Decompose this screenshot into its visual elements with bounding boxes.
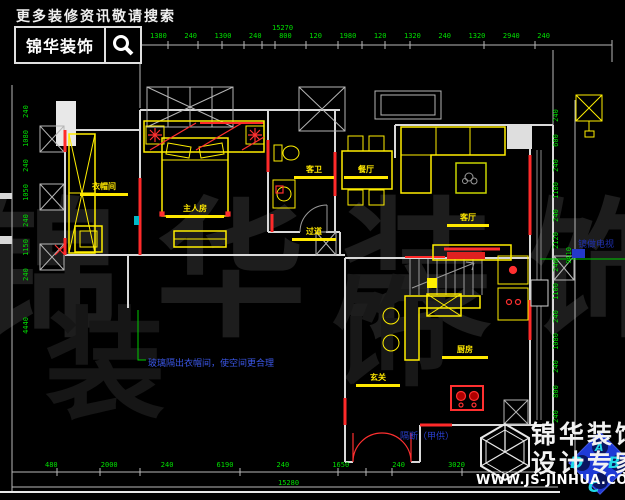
cube-logo [481,424,529,480]
website-link[interactable]: WWW.JS-JINHUA.COM [476,473,625,488]
cad-floorplan-screenshot: 锦华装饰 装 饰 [0,0,625,500]
